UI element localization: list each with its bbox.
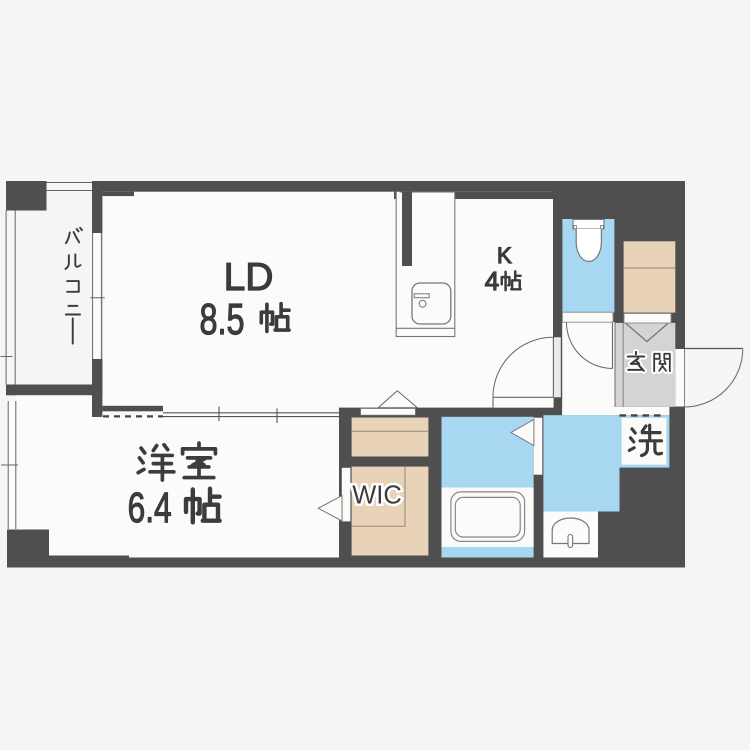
svg-text:LD: LD bbox=[224, 256, 274, 299]
svg-text:4: 4 bbox=[485, 266, 499, 296]
svg-text:WIC: WIC bbox=[352, 482, 402, 510]
svg-text:6.4: 6.4 bbox=[128, 484, 172, 532]
svg-text:K: K bbox=[497, 243, 512, 268]
svg-text:8.5: 8.5 bbox=[200, 295, 245, 344]
